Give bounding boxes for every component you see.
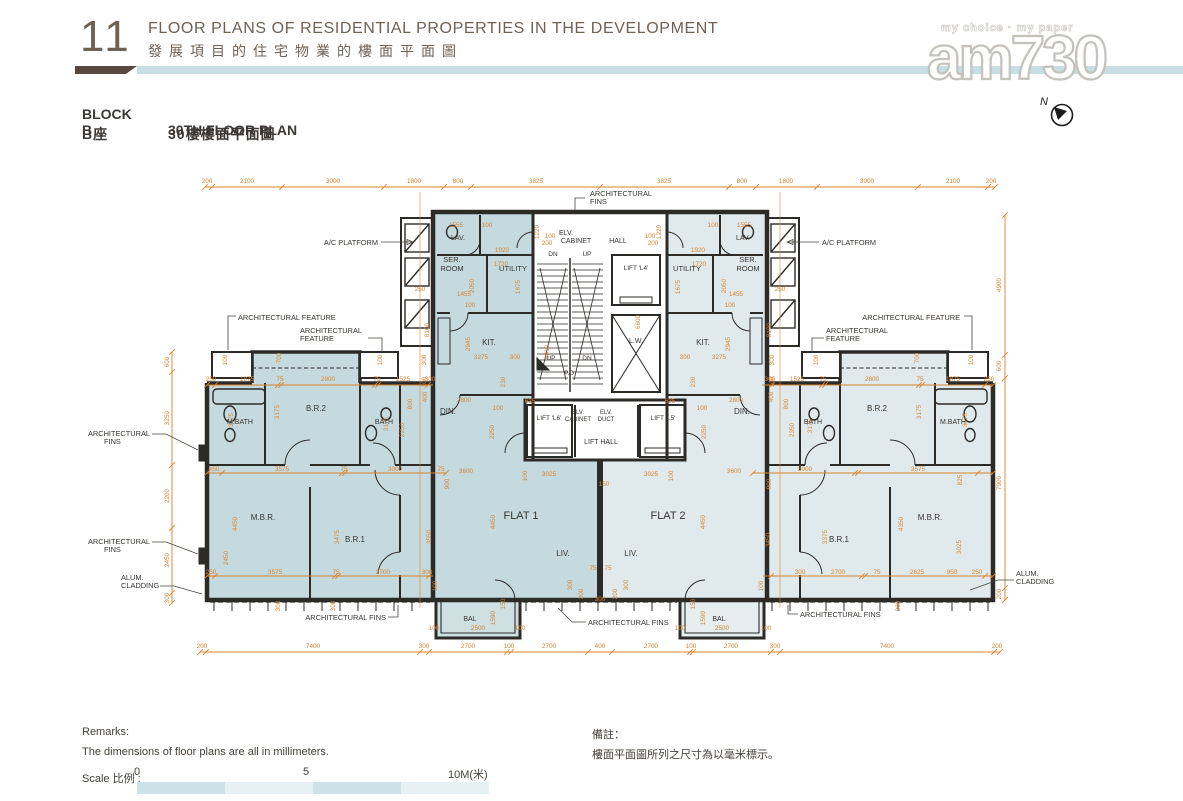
dim-label: 100 [465,302,476,309]
dim-label: 4350 [898,516,905,531]
dim-label: 100 [222,354,229,365]
dim-label: 100 [686,643,697,650]
room-label: FLAT 2 [650,510,685,522]
dim-label: 3000 [860,178,875,185]
room-label: M.BATH [940,419,966,426]
dim-label: 4450 [700,514,707,529]
room-label: BAL [463,616,476,623]
remarks-title-zh: 備註： [592,726,625,742]
dim-label: 200 [992,643,1003,650]
room-label: ELV. [600,410,612,416]
callout-label: ARCHITECTURAL FINS [305,613,386,622]
dim-label: 100 [504,643,515,650]
north-compass-icon: N [1040,96,1086,132]
dim-label: 2450 [164,552,171,567]
callout-label: A/C PLATFORM [324,238,378,247]
callout-label: FINS [104,545,121,554]
dim-label: 2700 [461,643,476,650]
callout-label: A/C PLATFORM [822,238,876,247]
dim-label: 3000 [798,466,813,473]
room-label: CABINET [561,238,592,245]
dim-label: 100 [813,354,820,365]
room-label: KIT. [696,338,710,347]
dim-label: 2800 [457,397,472,404]
room-label: LAV. [451,235,465,242]
dim-label: 230 [500,376,507,387]
dim-label: 1875 [946,376,961,383]
dim-label: 3175 [274,404,281,419]
dim-label: 300 [164,592,171,603]
floor-plan: 2002100300018008003825382580018003000210… [75,160,1105,700]
dim-label: 200 [542,240,553,247]
room-label: DN [582,355,592,362]
dim-label: 400 [768,391,775,402]
room-label: B.R.1 [829,535,850,544]
dim-label: 3000 [326,178,341,185]
dim-label: 8100 [766,322,773,337]
dim-label: 100 [645,233,656,240]
dim-label: 100 [429,625,440,632]
dim-label: 1875 [240,376,255,383]
dim-label: 300 [680,354,691,361]
dim-label: 2200 [164,488,171,503]
dim-label: 100 [377,354,384,365]
dim-label: 800 [783,398,790,409]
dim-label: 300 [421,354,428,365]
dim-label: 825 [957,474,964,485]
dim-label: 700 [914,352,921,363]
room-label: BATH [804,419,822,426]
scale-bar-segment [137,782,225,794]
block-title-zh: B座30樓樓面平面圖 [82,124,276,144]
block-plan-zh: 30樓樓面平面圖 [168,124,276,144]
dim-label: 4900 [996,277,1003,292]
dim-label: 3575 [268,569,283,576]
dim-label: 2350 [789,422,796,437]
dim-label: 100 [725,302,736,309]
dim-label: 800 [407,398,414,409]
dim-label: 2700 [542,643,557,650]
dim-label: 200 [612,588,619,599]
am730-watermark: my choice · my paper am730 [927,22,1179,85]
dim-label: 75 [916,376,924,383]
dim-label: 300 [769,354,776,365]
dim-label: 7400 [880,643,895,650]
dim-label: 100 [758,580,765,591]
dim-label: 625 [525,398,536,405]
dim-label: 3575 [911,466,926,473]
room-label: LIV. [624,549,638,558]
dim-label: 3600 [459,468,474,475]
dim-label: 250 [206,376,217,383]
dim-label: 75 [873,569,881,576]
dim-label: 3025 [956,539,963,554]
dim-label: 100 [482,222,493,229]
room-label: ROOM [736,264,759,273]
dim-label: 800 [453,178,464,185]
dim-label: 1800 [407,178,422,185]
dim-label: 1590 [700,610,707,625]
dim-label: 8100 [424,322,431,337]
dim-label: 150 [599,481,610,488]
dim-label: 100 [522,470,529,481]
room-label: ROOM [440,264,463,273]
dim-label: 200 [648,240,659,247]
room-label: UP [546,355,555,362]
room-label: LIFT 'L5' [651,415,676,422]
callout-label: CLADDING [121,581,159,590]
dim-label: 100 [761,625,772,632]
dim-label: 400 [595,643,606,650]
scale-tick-5: 5 [303,766,309,778]
room-label: LIV. [556,549,570,558]
page-title-en: FLOOR PLANS OF RESIDENTIAL PROPERTIES IN… [148,20,718,38]
callout-label: FEATURE [300,334,334,343]
dim-label: 3025 [644,471,659,478]
callout-label: ARCHITECTURAL FEATURE [862,313,960,322]
dim-label: 75 [589,565,597,572]
dim-label: 2700 [831,569,846,576]
room-label: L.W. [629,338,643,345]
room-label: DIN. [734,407,750,416]
dim-label: 300 [595,596,606,603]
room-label: ELV. [572,410,584,416]
dim-label: 1675 [675,279,682,294]
dim-label: 75 [819,376,827,383]
room-label: LIFT 'L6' [537,415,562,422]
dim-label: 1920 [691,247,706,254]
dim-label: 1675 [515,279,522,294]
dim-label: 2945 [725,336,732,351]
dim-label: 3600 [727,468,742,475]
callout-label: ARCHITECTURAL FINS [800,610,881,619]
dim-label: 600 [164,356,171,367]
dim-label: 300 [895,600,902,611]
dim-label: 900 [766,478,773,489]
dim-label: 300 [567,579,574,590]
page-title-zh: 發展項目的住宅物業的樓面平面圖 [148,41,463,61]
dim-label: 150 [690,598,697,609]
dim-label: 1590 [490,610,497,625]
dim-label: 250 [206,569,217,576]
dim-label: 900 [444,478,451,489]
block-name-zh: B座 [82,124,134,144]
dim-label: 100 [432,580,439,591]
header-divider [75,66,1183,74]
room-label: M.B.R. [251,513,275,522]
dim-label: 1455 [457,291,472,298]
dim-label: 2700 [644,643,659,650]
room-label: M.BATH [227,419,253,426]
dim-label: 4450 [490,514,497,529]
room-label: B.R.2 [306,404,327,413]
dim-label: 2945 [465,336,472,351]
dim-label: 100 [968,354,975,365]
dim-label: 100 [668,470,675,481]
dim-label: 100 [545,233,556,240]
dim-label: 1220 [656,224,663,239]
dim-label: 400 [422,391,429,402]
room-label: FLAT 1 [503,510,538,522]
callout-label: FEATURE [826,334,860,343]
dim-label: 3550 [426,529,433,544]
room-label: BATH [375,419,393,426]
dim-label: 7400 [306,643,321,650]
dim-label: 950 [947,569,958,576]
am730-logo: am730 [927,34,1179,85]
dim-label: 600 [996,360,1003,371]
watermark-tagline: my choice · my paper [941,22,1179,34]
remarks-body-zh: 樓面平面圖所列之尺寸為以毫米標示。 [592,746,779,762]
dim-label: 3250 [164,410,171,425]
room-label: HALL [609,238,627,245]
room-label: DIN. [440,407,456,416]
remarks-title-en: Remarks: [82,726,129,738]
callout-label: ARCHITECTURAL FINS [588,618,669,627]
dim-label: 300 [510,354,521,361]
dim-label: 75 [604,565,612,572]
dim-label: 300 [330,600,337,611]
room-label: DN [548,251,558,258]
dim-label: 3000 [388,466,403,473]
dim-label: 2450 [223,550,230,565]
dim-label: 100 [769,376,776,387]
dim-label: 3275 [712,354,727,361]
scale-label: Scale 比例 : [82,770,141,786]
dim-label: 3475 [334,529,341,544]
scale-bar-segment [313,782,401,794]
dim-label: 1525 [396,376,411,383]
dim-label: 1800 [779,178,794,185]
dim-label: 75 [332,569,340,576]
dim-label: 300 [623,579,630,590]
dim-label: 300 [419,643,430,650]
room-label: KIT. [482,338,496,347]
room-label: CABINET [565,417,591,423]
dim-label: 2100 [240,178,255,185]
room-label: UTILITY [673,264,701,273]
dim-label: 2500 [715,625,730,632]
room-label: B.R.2 [867,404,888,413]
dim-label: 3825 [529,178,544,185]
dim-label: 2800 [865,376,880,383]
dim-label: 2100 [946,178,961,185]
dim-label: 300 [770,643,781,650]
dim-label: 200 [197,643,208,650]
dim-label: 1220 [534,224,541,239]
dim-label: 7900 [996,475,1003,490]
room-label: M.B.R. [918,513,942,522]
dim-label: 200 [578,588,585,599]
dim-label: 800 [737,178,748,185]
dim-label: 2800 [321,376,336,383]
divider-chip [75,66,137,74]
room-label: UTILITY [499,264,527,273]
dim-label: 150 [500,598,507,609]
dim-label: 1525 [790,376,805,383]
dim-label: 75 [437,466,445,473]
callout-label: ARCHITECTURAL FEATURE [238,313,336,322]
compass-n-label: N [1040,96,1048,108]
dim-label: 1920 [495,247,510,254]
dim-label: 2250 [701,424,708,439]
dim-label: 250 [984,376,995,383]
dim-label: 75 [373,376,381,383]
dim-label: 75 [276,376,284,383]
dim-label: 200 [996,588,1003,599]
dim-label: 450 [209,466,220,473]
scale-bar-segment [401,782,489,794]
dim-label: 1455 [729,291,744,298]
dim-label: 300 [422,569,433,576]
dim-label: 1555 [737,222,752,229]
dim-label: 3025 [542,471,557,478]
remarks-body-en: The dimensions of floor plans are all in… [82,746,329,758]
dim-label: 2500 [471,625,486,632]
callout-label: FINS [590,197,607,206]
dim-label: 3825 [657,178,672,185]
dim-label: 100 [493,405,504,412]
dim-label: 2700 [724,643,739,650]
dim-label: 2250 [489,424,496,439]
brochure-page: 11 FLOOR PLANS OF RESIDENTIAL PROPERTIES… [0,0,1183,801]
dim-label: 6600 [635,314,642,329]
dim-label: 2050 [721,278,728,293]
room-label: LIFT HALL [584,439,618,446]
room-label: ELV. [559,230,573,237]
dim-label: 2250 [399,422,406,437]
dim-label: 250 [775,286,786,293]
dim-label: 3175 [916,404,923,419]
dim-label: 300 [275,600,282,611]
dim-label: 3450 [765,532,772,547]
dim-label: 100 [515,625,526,632]
dim-label: 200 [986,178,997,185]
dim-label: 100 [708,222,719,229]
dim-label: 300 [795,569,806,576]
dim-label: 200 [202,178,213,185]
room-label: SER. [739,255,757,264]
scale-bar [137,782,489,794]
room-label: UP [582,251,591,258]
dim-label: 2700 [376,569,391,576]
room-label: BAL [712,616,725,623]
dim-label: 3275 [474,354,489,361]
dim-label: 250 [415,286,426,293]
room-label: P.D. [564,370,576,377]
dim-label: 1555 [449,222,464,229]
dim-label: 75 [340,466,348,473]
dim-label: 100 [675,625,686,632]
room-label: LIFT 'L4' [624,265,649,272]
dim-label: 2800 [729,397,744,404]
callout-label: FINS [104,437,121,446]
dim-label: 230 [690,376,697,387]
page-number: 11 [80,12,132,62]
callout-label: CLADDING [1016,577,1054,586]
dim-label: 2625 [910,569,925,576]
dim-label: 3575 [275,466,290,473]
dim-label: 3375 [822,529,829,544]
room-label: LAV. [736,235,750,242]
room-label: DUCT [598,417,615,423]
dim-label: 625 [665,398,676,405]
dim-label: 100 [421,376,428,387]
scale-bar-segment [225,782,313,794]
dim-label: 100 [697,405,708,412]
dim-label: 700 [276,352,283,363]
scale-tick-0: 0 [134,766,140,778]
room-label: B.R.1 [345,535,366,544]
dim-label: 4450 [232,516,239,531]
scale-tick-10: 10M(米) [448,766,488,782]
room-label: SER. [443,255,461,264]
dim-label: 250 [972,569,983,576]
divider-bar [137,66,1183,74]
